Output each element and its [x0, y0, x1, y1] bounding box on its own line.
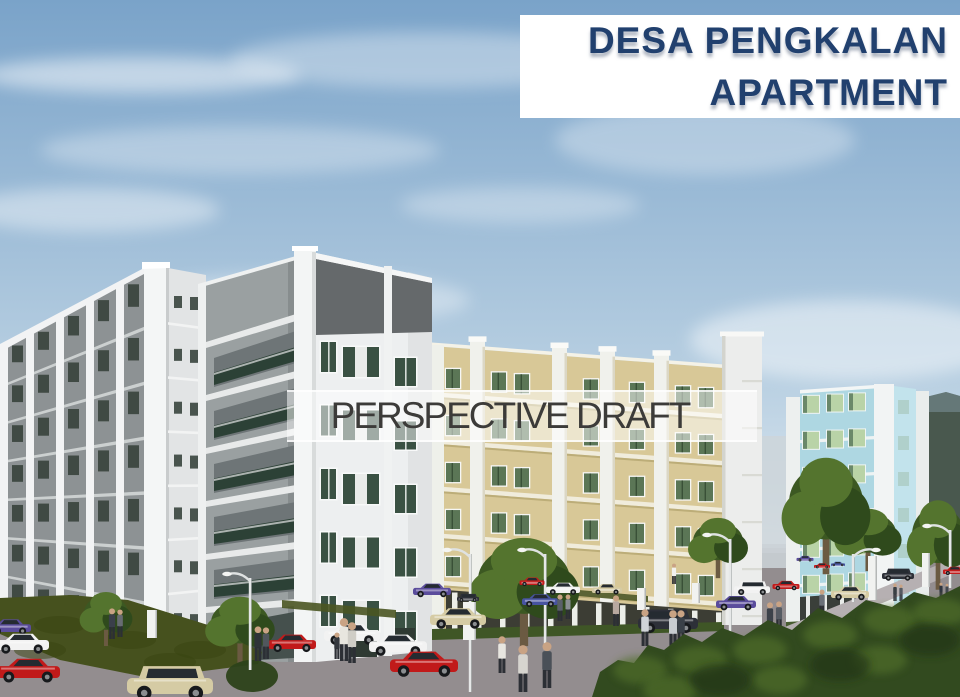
car-hub — [21, 629, 24, 632]
person-leg — [543, 670, 547, 688]
window-mullion — [452, 463, 453, 482]
tower-shade — [722, 336, 726, 625]
tower-cap — [720, 332, 764, 337]
car-highlight — [395, 661, 452, 663]
window — [128, 338, 139, 361]
person-head — [672, 564, 676, 568]
window — [128, 499, 139, 522]
window-mullion — [328, 533, 330, 563]
window-mullion — [521, 468, 522, 487]
window-mullion — [405, 358, 407, 386]
person-head — [348, 622, 356, 630]
person-leg — [642, 632, 645, 646]
person-head — [819, 589, 824, 594]
person-head — [117, 609, 122, 614]
tower-slab-line — [742, 568, 762, 570]
car-hub — [549, 603, 552, 606]
car-hub — [826, 566, 827, 567]
car-hub — [6, 675, 11, 680]
person-leg — [340, 644, 344, 661]
person-leg — [613, 614, 616, 626]
person-torso — [334, 638, 339, 649]
window — [174, 507, 182, 519]
pilaster-cap — [599, 346, 617, 352]
window-mullion — [328, 342, 330, 372]
window-mullion — [405, 549, 407, 577]
forest-shadow — [810, 649, 870, 681]
person-torso — [613, 601, 619, 614]
window — [38, 461, 49, 479]
person-leg — [348, 647, 351, 663]
person-torso — [498, 643, 506, 659]
forest-shadow — [900, 624, 960, 656]
person-leg — [523, 674, 527, 692]
window-mullion — [682, 527, 683, 546]
bush — [226, 660, 278, 692]
person-leg — [502, 659, 505, 673]
window-mullion — [498, 467, 499, 486]
person-head — [767, 602, 773, 608]
person-leg — [672, 576, 674, 584]
window-shade — [803, 576, 807, 593]
car-hub — [597, 591, 599, 593]
window-shade — [803, 396, 807, 413]
car-highlight — [374, 643, 423, 645]
window — [174, 560, 182, 572]
car-hub — [761, 591, 764, 594]
person-head — [899, 585, 902, 588]
person-leg — [499, 659, 502, 673]
distant-haze — [762, 436, 790, 568]
car-hub — [552, 591, 555, 594]
person-head — [677, 610, 684, 617]
column-cap — [142, 262, 170, 269]
window — [98, 400, 109, 421]
window-mullion — [636, 524, 637, 543]
car-hub — [474, 599, 476, 601]
lamp-head — [702, 533, 712, 537]
car-hub — [439, 622, 443, 626]
person-head — [776, 601, 782, 607]
window — [190, 403, 199, 416]
person-torso — [767, 608, 773, 621]
car-hub — [4, 647, 8, 651]
window-mullion — [498, 514, 499, 533]
window — [98, 450, 109, 471]
person-head — [641, 609, 648, 616]
column-cap — [292, 246, 318, 251]
window — [98, 500, 109, 521]
car-hub — [799, 559, 800, 560]
person-leg — [255, 647, 258, 661]
facade-fin — [56, 312, 64, 631]
person-leg — [560, 611, 562, 621]
window-mullion — [705, 576, 706, 595]
window — [12, 505, 23, 522]
car-hub — [378, 649, 382, 653]
window — [128, 553, 139, 576]
car-hub — [419, 593, 422, 596]
car-hub — [276, 646, 280, 650]
perspective-draft-watermark: PERSPECTIVE DRAFT — [287, 390, 757, 442]
person-leg — [558, 611, 560, 621]
window — [190, 297, 199, 310]
person-torso — [677, 617, 685, 633]
car-hub — [524, 583, 526, 585]
window-mullion — [705, 482, 706, 501]
lamp-head — [922, 524, 932, 528]
lamp-head — [517, 548, 527, 552]
tree-foliage — [799, 458, 852, 507]
person-torso — [340, 627, 349, 645]
window — [68, 316, 79, 336]
person-leg — [263, 647, 266, 659]
car-hub — [461, 599, 463, 601]
car-hub — [746, 605, 749, 608]
person-torso — [557, 600, 562, 611]
person-head — [557, 594, 562, 599]
person-torso — [542, 651, 551, 671]
car-glass — [146, 669, 198, 679]
car-hub — [947, 572, 949, 574]
project-title-banner: DESA PENGKALAN APARTMENT — [520, 15, 960, 118]
person-head — [334, 632, 339, 637]
car-hub — [837, 596, 840, 599]
window-mullion — [328, 469, 330, 499]
window — [174, 349, 182, 361]
facade-fin — [86, 296, 94, 640]
person-leg — [674, 576, 676, 584]
car-highlight — [134, 680, 206, 682]
window-mullion — [636, 571, 637, 590]
car-hub — [528, 603, 531, 606]
window — [128, 445, 139, 468]
facade-fin — [26, 328, 34, 622]
tree-foliage — [491, 538, 557, 584]
car-hub — [722, 605, 725, 608]
person-leg — [899, 595, 900, 601]
person-leg — [266, 647, 269, 659]
lamp-head — [222, 572, 232, 576]
person-head — [543, 642, 552, 651]
window-shade — [803, 432, 807, 449]
car-hub — [36, 647, 40, 651]
person-torso — [518, 654, 528, 674]
person-head — [669, 610, 677, 618]
window-mullion — [590, 473, 591, 492]
panel-shade — [929, 553, 931, 587]
car-hub — [442, 593, 445, 596]
window-mullion — [636, 477, 637, 496]
window-mullion — [590, 567, 591, 586]
window-shade — [827, 395, 831, 412]
window — [68, 502, 79, 522]
car-hub — [442, 668, 447, 673]
person-head — [946, 584, 949, 587]
car-hub — [193, 690, 200, 697]
pilaster-cap — [469, 336, 487, 342]
person-torso — [672, 568, 676, 577]
person-torso — [893, 587, 897, 594]
cloud — [40, 126, 440, 174]
forest-highlight — [803, 621, 857, 649]
window-panel — [355, 538, 367, 568]
window — [68, 456, 79, 476]
person-head — [340, 618, 348, 626]
window-shade — [849, 429, 853, 446]
window — [68, 549, 79, 569]
side-window — [898, 508, 909, 522]
person-leg — [645, 632, 648, 646]
window-shade — [827, 431, 831, 448]
person-leg — [547, 670, 551, 688]
window-panel — [355, 347, 367, 377]
person-head — [255, 626, 262, 633]
person-leg — [344, 644, 348, 661]
panel-shade — [699, 583, 701, 603]
car-hub — [572, 591, 575, 594]
apartment-perspective-rendering: DESA PENGKALAN APARTMENT PERSPECTIVE DRA… — [0, 0, 960, 697]
corner-column — [144, 266, 168, 658]
person-torso — [946, 587, 949, 593]
column-shade — [312, 252, 316, 662]
window-mullion — [452, 369, 453, 388]
pilaster-cap — [653, 350, 671, 356]
edge-shade — [166, 268, 169, 656]
pole-shade — [251, 578, 252, 670]
person-leg — [117, 626, 119, 637]
person-leg — [258, 647, 261, 661]
window — [12, 425, 23, 442]
tree-foliage — [90, 592, 122, 615]
person-torso — [899, 588, 902, 595]
car-hub — [473, 622, 477, 626]
window — [12, 465, 23, 482]
car-hub — [401, 668, 406, 673]
window — [68, 409, 79, 429]
window — [190, 508, 199, 521]
front-pilaster — [384, 266, 392, 656]
window-mullion — [452, 557, 453, 576]
car-highlight — [272, 642, 312, 644]
lamp-head — [871, 548, 881, 552]
window — [38, 547, 49, 565]
car-highlight — [1, 668, 55, 670]
grass-patch — [34, 616, 86, 634]
cloud — [400, 187, 640, 223]
person-head — [893, 584, 896, 587]
person-leg — [566, 609, 568, 619]
car-hub — [817, 566, 818, 567]
project-title-line2: APARTMENT — [709, 73, 948, 113]
person-torso — [117, 615, 123, 627]
window-panel — [355, 474, 367, 504]
window — [98, 300, 109, 321]
car-hub — [740, 591, 743, 594]
window — [98, 551, 109, 572]
facade-fin — [116, 281, 124, 650]
person-leg — [112, 627, 115, 639]
person-leg — [616, 614, 619, 626]
forest-highlight — [733, 636, 787, 664]
car-hub — [809, 559, 810, 560]
person-head — [566, 595, 571, 600]
person-torso — [263, 634, 270, 648]
person-leg — [519, 674, 523, 692]
window-shade — [849, 393, 853, 410]
panel-shade — [876, 556, 878, 600]
person-head — [613, 595, 619, 601]
window-mullion — [590, 520, 591, 539]
window — [38, 418, 49, 436]
side-window — [898, 472, 909, 486]
person-head — [940, 583, 943, 586]
car-hub — [615, 591, 617, 593]
person-leg — [337, 649, 339, 659]
car-hub — [539, 583, 541, 585]
tree-foliage — [219, 597, 261, 625]
person-torso — [254, 633, 261, 648]
car-hub — [860, 596, 863, 599]
pole-shade — [731, 539, 732, 641]
person-torso — [776, 607, 782, 620]
panel-shade — [645, 588, 647, 610]
project-title-line1: DESA PENGKALAN — [588, 21, 948, 61]
person-leg — [352, 647, 355, 663]
person-leg — [895, 594, 896, 601]
window — [12, 385, 23, 402]
person-torso — [641, 616, 649, 632]
person-torso — [348, 630, 356, 648]
car-highlight — [434, 616, 481, 618]
facade-fin — [0, 342, 8, 615]
window-mullion — [498, 373, 499, 392]
window — [12, 545, 23, 562]
window-mullion — [682, 480, 683, 499]
car-hub — [777, 587, 779, 589]
window — [174, 455, 182, 467]
car-hub — [906, 577, 908, 579]
side-window — [898, 400, 909, 414]
car-hub — [793, 587, 795, 589]
pole-shade — [951, 530, 952, 588]
window — [98, 350, 109, 371]
forest-highlight — [753, 666, 807, 694]
tower-slab-line — [742, 521, 762, 523]
car-hub — [367, 638, 371, 642]
side-window — [898, 436, 909, 450]
person-torso — [109, 614, 115, 627]
window — [12, 346, 23, 363]
person-leg — [109, 627, 112, 639]
tower-slab-line — [742, 474, 762, 476]
window-mullion — [405, 485, 407, 513]
watermark-label: PERSPECTIVE DRAFT — [331, 395, 690, 437]
person-leg — [335, 649, 337, 659]
person-head — [498, 636, 505, 643]
car-hub — [305, 646, 309, 650]
window — [190, 456, 199, 469]
car-highlight — [0, 641, 45, 643]
car-body — [0, 624, 31, 632]
person-leg — [568, 609, 570, 619]
person-torso — [669, 618, 677, 635]
panel-shade — [156, 610, 158, 638]
person-leg — [120, 626, 122, 637]
person-torso — [819, 595, 824, 606]
window-mullion — [521, 515, 522, 534]
window — [128, 392, 139, 415]
forest-shadow — [690, 664, 750, 696]
lamp-head — [442, 548, 452, 552]
window — [38, 375, 49, 393]
person-head — [263, 627, 269, 633]
window — [38, 332, 49, 350]
window-shade — [827, 575, 831, 592]
window-mullion — [682, 574, 683, 593]
person-head — [518, 645, 527, 654]
person-torso — [939, 586, 942, 593]
car-hub — [833, 564, 834, 565]
car-hub — [141, 690, 148, 697]
car-hub — [887, 577, 889, 579]
pilaster-cap — [551, 343, 569, 349]
tower-slab-line — [742, 380, 762, 382]
window — [38, 504, 49, 522]
window — [174, 402, 182, 414]
person-head — [109, 608, 115, 614]
person-leg — [893, 594, 894, 601]
car-highlight — [0, 626, 28, 628]
car-highlight — [643, 619, 693, 621]
window — [128, 284, 139, 307]
window — [190, 561, 199, 574]
window — [190, 350, 199, 363]
side-white-strip — [198, 284, 206, 661]
window — [68, 362, 79, 382]
car-hub — [45, 675, 50, 680]
tower-slab-line — [742, 615, 762, 617]
person-torso — [565, 599, 570, 610]
car-hub — [842, 564, 843, 565]
window-mullion — [452, 510, 453, 529]
window — [174, 296, 182, 308]
